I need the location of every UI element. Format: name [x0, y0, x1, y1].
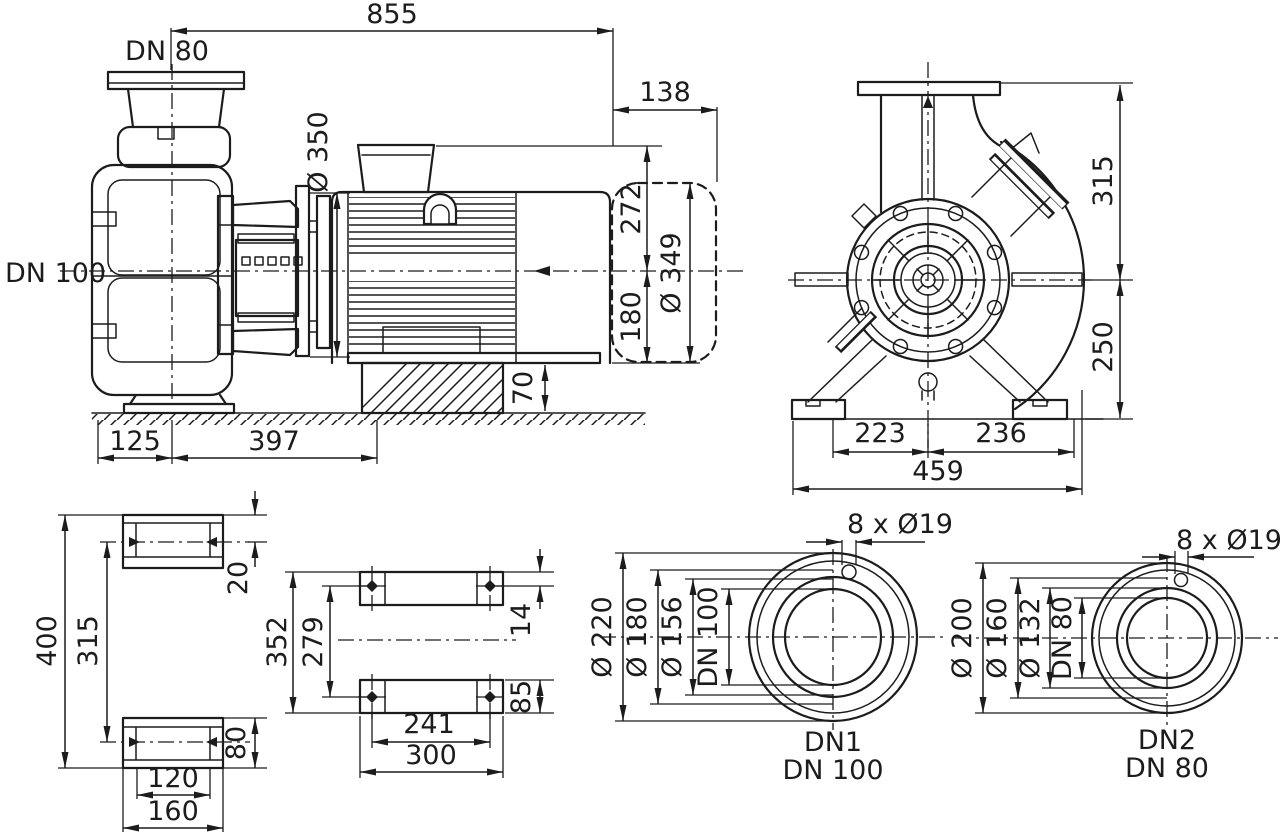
- dim-text-dn100-bore: DN 100: [693, 586, 724, 687]
- front-view-art: [788, 62, 1103, 448]
- terminal-box: [358, 145, 434, 192]
- label-suction-dn100: DN 100: [5, 258, 106, 289]
- label-dn1: DN1: [804, 727, 862, 758]
- dim-foot-top-to-hole: 20: [223, 491, 267, 595]
- dim-text-236: 236: [975, 418, 1027, 449]
- discharge-flange: [108, 72, 244, 167]
- suction-nozzle-diagonal: [972, 142, 1066, 236]
- dim-motor-diameter: Ø 349: [656, 183, 690, 362]
- dim-foot-length: 397: [172, 426, 377, 458]
- dim-foot-hole-spacing: 315: [73, 542, 107, 742]
- flange-dn2-view: 8 x Ø19 Ø 200 Ø 160 Ø 132 DN 80 DN2 DN 8…: [947, 525, 1280, 784]
- dim-text-220: Ø 220: [587, 596, 618, 677]
- foot-front-view: 400 315 20 80 120 160: [32, 491, 267, 832]
- side-view-art: [60, 64, 748, 430]
- dim-foundation-height: 70: [508, 365, 545, 411]
- motor-body: [332, 192, 610, 363]
- label-dn1-size: DN 100: [782, 755, 883, 786]
- bolt-hole-dn1: [842, 565, 856, 579]
- dim-text-dn2-bolts: 8 x Ø19: [1176, 525, 1280, 556]
- dim-foot-left: 223: [833, 418, 928, 458]
- dim-text-315b: 315: [73, 615, 104, 667]
- dim-text-272: 272: [616, 183, 647, 235]
- dim-front-height-bottom: 250: [1088, 280, 1120, 418]
- dim-text-352: 352: [262, 616, 293, 668]
- dim-text-200: Ø 200: [947, 597, 978, 678]
- side-view: 855 138 DN 80 DN 100 Ø 350 272 180 Ø 349: [5, 0, 748, 464]
- dim-text-315: 315: [1088, 155, 1119, 207]
- dim-text-80: 80: [221, 726, 252, 760]
- ground-line: [92, 413, 645, 425]
- dim-text-dn80-bore: DN 80: [1047, 596, 1078, 680]
- dim-text-241: 241: [403, 709, 455, 740]
- dim-text-250: 250: [1088, 321, 1119, 373]
- dim-text-180: 180: [616, 291, 647, 343]
- label-dn2-size: DN 80: [1125, 753, 1209, 784]
- dim-hole-spacing-length: 279: [298, 586, 366, 697]
- label-dn2: DN2: [1138, 725, 1196, 756]
- lifting-eye: [424, 194, 456, 224]
- dim-foot-width: 160: [123, 796, 223, 828]
- dim-edge-to-hole: 14: [496, 549, 554, 637]
- dim-text-70: 70: [508, 371, 539, 405]
- dim-text-160f: Ø 160: [982, 597, 1013, 678]
- dim-text-855: 855: [366, 0, 418, 30]
- dim-center-to-base: 180: [616, 271, 647, 363]
- dim-text-14: 14: [506, 603, 537, 637]
- bolt-hole-dn2: [1175, 574, 1188, 587]
- dim-text-350: Ø 350: [303, 111, 334, 192]
- volute-casing: [92, 165, 232, 395]
- dim-text-279: 279: [298, 616, 329, 668]
- dim-text-125: 125: [109, 426, 161, 457]
- dim-text-138: 138: [639, 77, 691, 108]
- label-discharge-dn80: DN 80: [125, 36, 209, 67]
- dim-text-132: Ø 132: [1015, 597, 1046, 678]
- dim-text-20: 20: [223, 561, 254, 595]
- dim-text-459: 459: [912, 456, 964, 487]
- dim-text-300: 300: [405, 740, 457, 771]
- dim-text-85: 85: [506, 680, 537, 714]
- casing-bolt-bars-lower-left: [828, 308, 874, 350]
- foot-plan-art: [338, 566, 516, 719]
- dim-text-180f: Ø 180: [622, 596, 653, 677]
- dim-text-156: Ø 156: [657, 596, 688, 677]
- dim-text-223: 223: [854, 418, 906, 449]
- vent-plugs: [242, 257, 302, 265]
- dim-text-dn1-bolts: 8 x Ø19: [847, 509, 953, 540]
- foot-plan-view: 352 279 14 85 241 300: [262, 549, 554, 778]
- dim-text-397: 397: [248, 426, 300, 457]
- dim-foot-right: 236: [928, 418, 1074, 458]
- pump-dimensional-drawing: 855 138 DN 80 DN 100 Ø 350 272 180 Ø 349: [0, 0, 1280, 839]
- dim-text-120: 120: [147, 763, 199, 794]
- dim-foot-height: 80: [221, 718, 267, 768]
- feet: [792, 400, 1103, 419]
- top-mounting-plate: [858, 82, 1000, 95]
- pump-pedestal: [124, 395, 234, 413]
- dim-plate-width: 85: [505, 680, 554, 714]
- dim-dn2-bolts: 8 x Ø19: [1142, 525, 1280, 574]
- front-view: 315 250 223 236 459: [788, 62, 1133, 495]
- dim-text-349: Ø 349: [656, 232, 687, 313]
- bolt-holes-plan: [358, 566, 504, 719]
- dim-motor-overhang: 138: [613, 77, 717, 182]
- dim-text-400: 400: [32, 615, 63, 667]
- drawing-canvas: 855 138 DN 80 DN 100 Ø 350 272 180 Ø 349: [0, 0, 1280, 839]
- flange-dn1-view: 8 x Ø19 Ø 220 Ø 180 Ø 156 DN 100 DN1 DN …: [587, 509, 953, 786]
- dim-text-160: 160: [147, 796, 199, 827]
- dim-dn1-bolts: 8 x Ø19: [806, 509, 953, 565]
